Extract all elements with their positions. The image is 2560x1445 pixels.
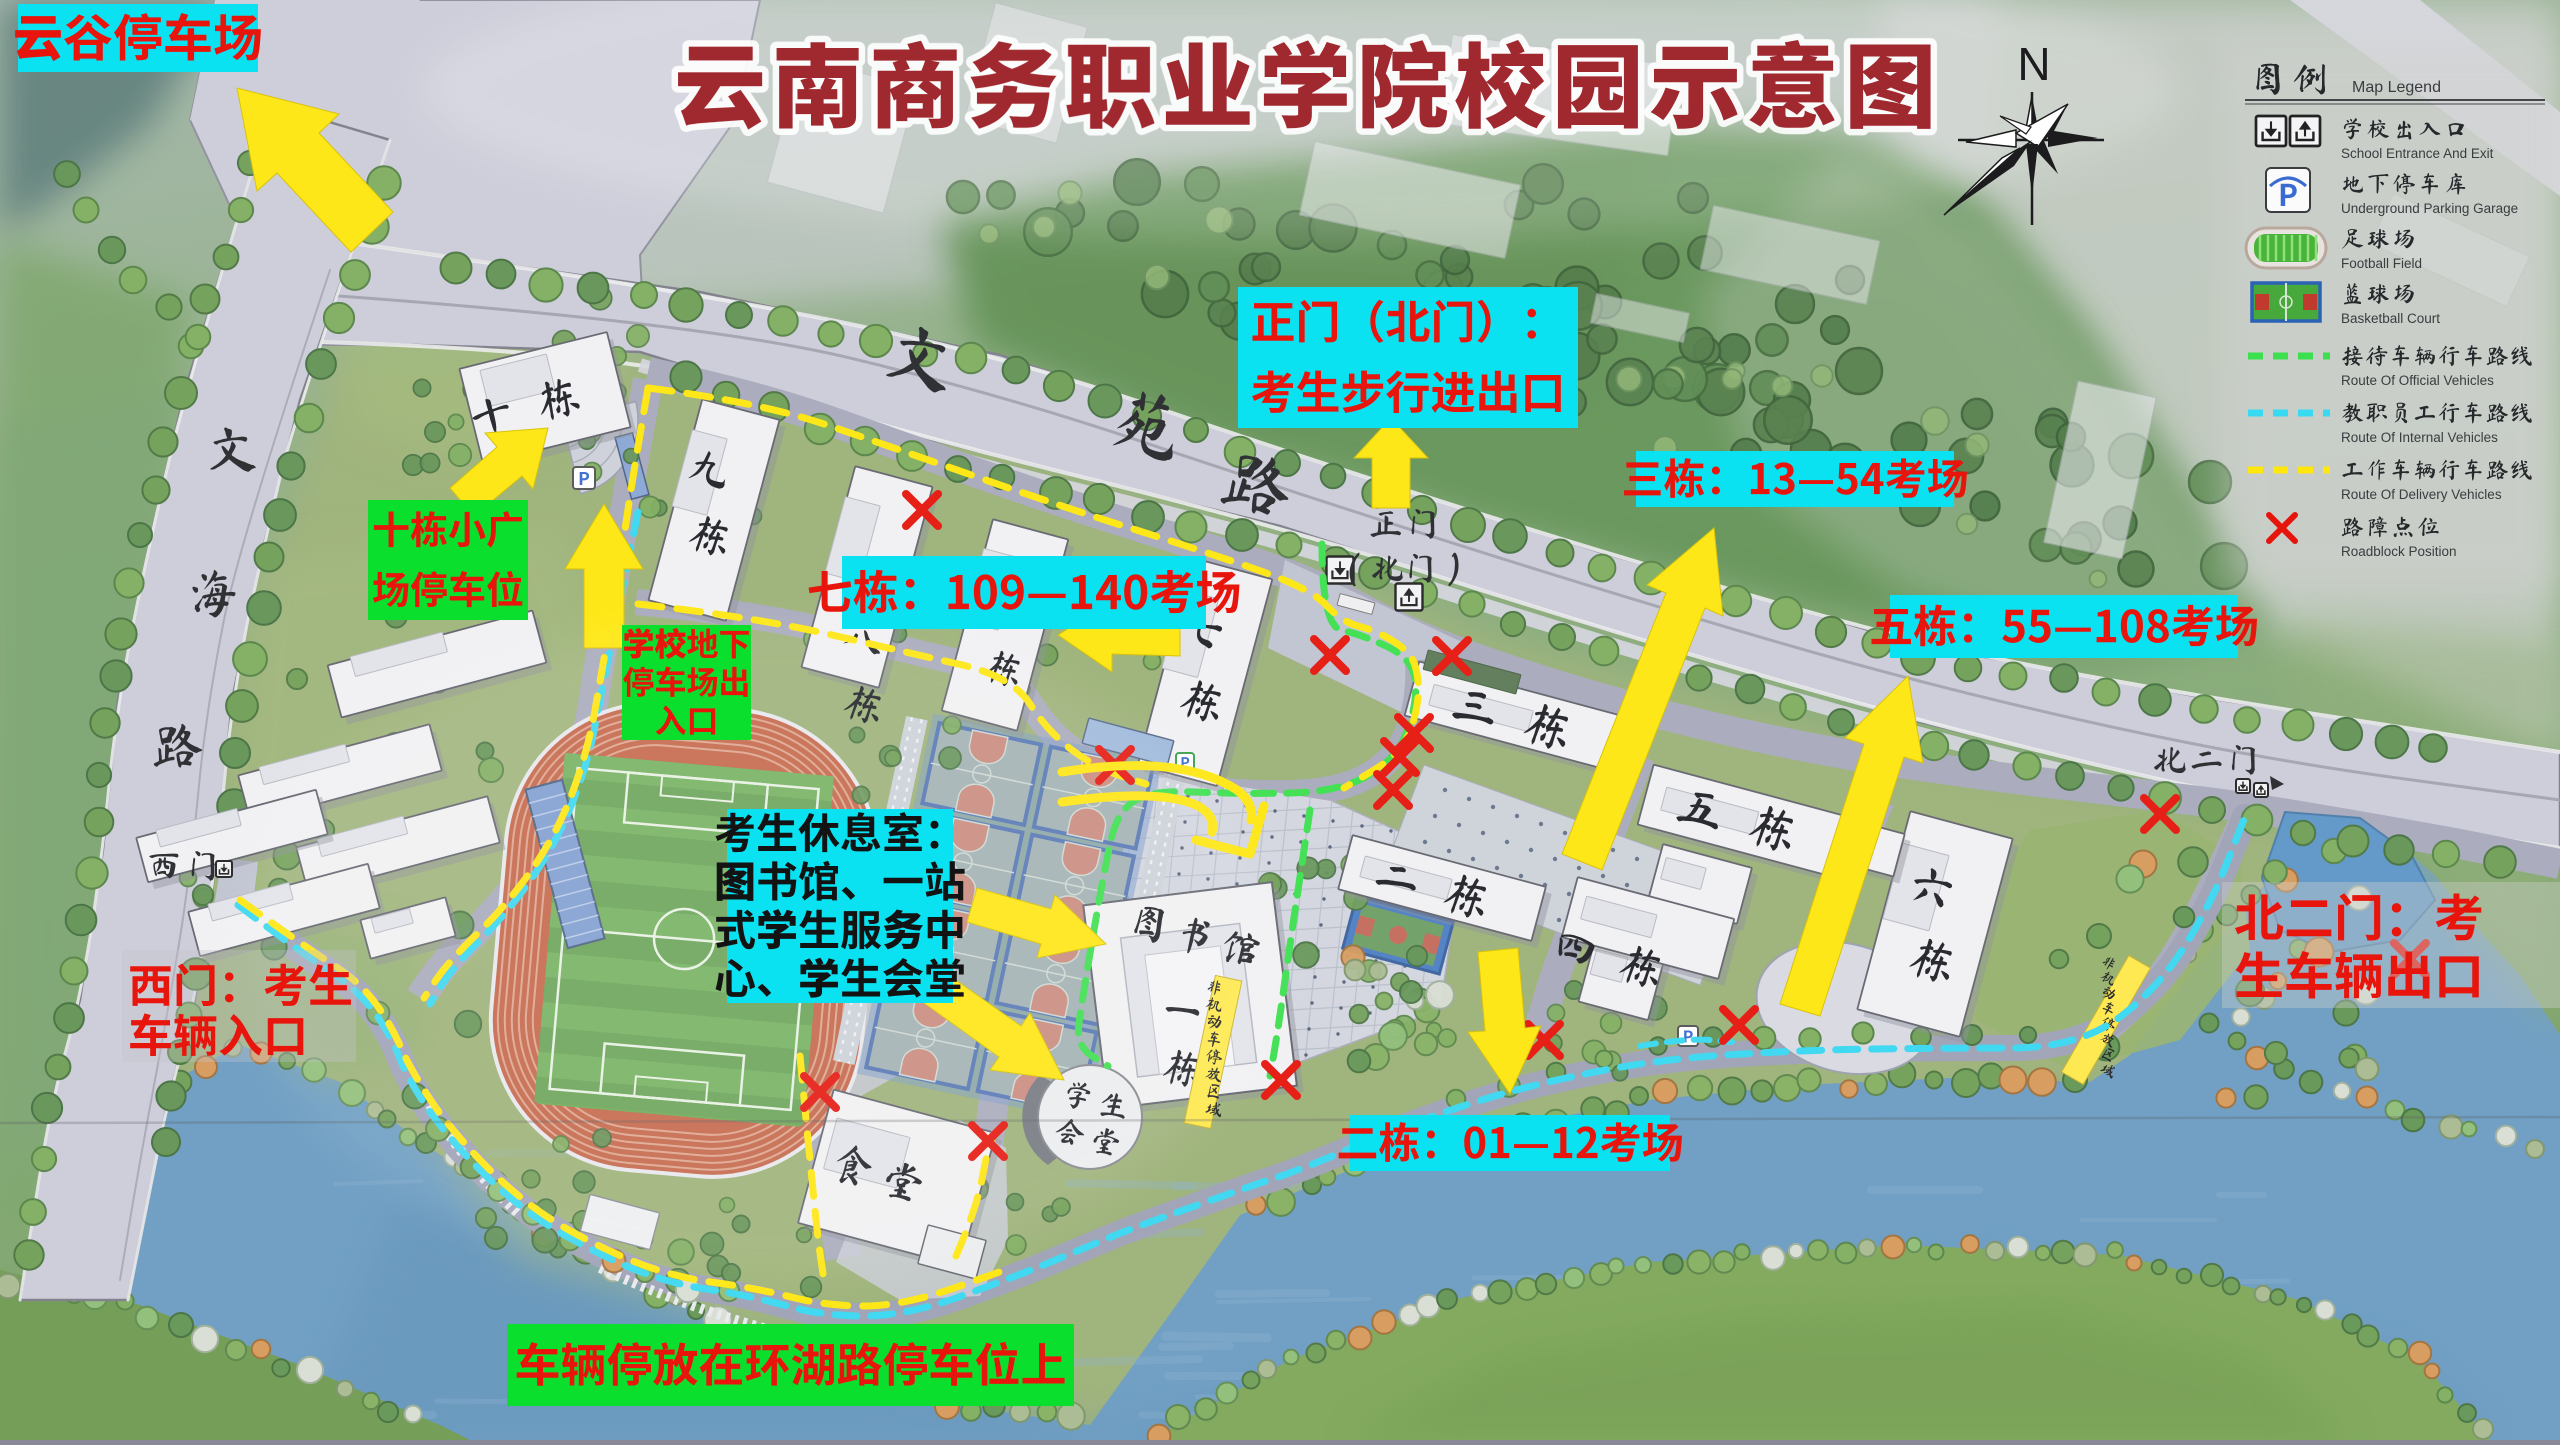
svg-text:Football Field: Football Field: [2341, 256, 2422, 271]
svg-text:Basketball Court: Basketball Court: [2341, 311, 2440, 326]
svg-text:Route Of Delivery Vehicles: Route Of Delivery Vehicles: [2341, 487, 2502, 502]
svg-text:Route Of Internal Vehicles: Route Of Internal Vehicles: [2341, 430, 2498, 445]
svg-text:Map Legend: Map Legend: [2352, 79, 2441, 96]
svg-text:N: N: [2017, 38, 2050, 90]
svg-text:School Entrance And Exit: School Entrance And Exit: [2341, 146, 2494, 161]
svg-text:Roadblock Position: Roadblock Position: [2341, 544, 2457, 559]
svg-text:Underground Parking Garage: Underground Parking Garage: [2341, 201, 2518, 216]
svg-text:Route Of Official Vehicles: Route Of Official Vehicles: [2341, 373, 2494, 388]
